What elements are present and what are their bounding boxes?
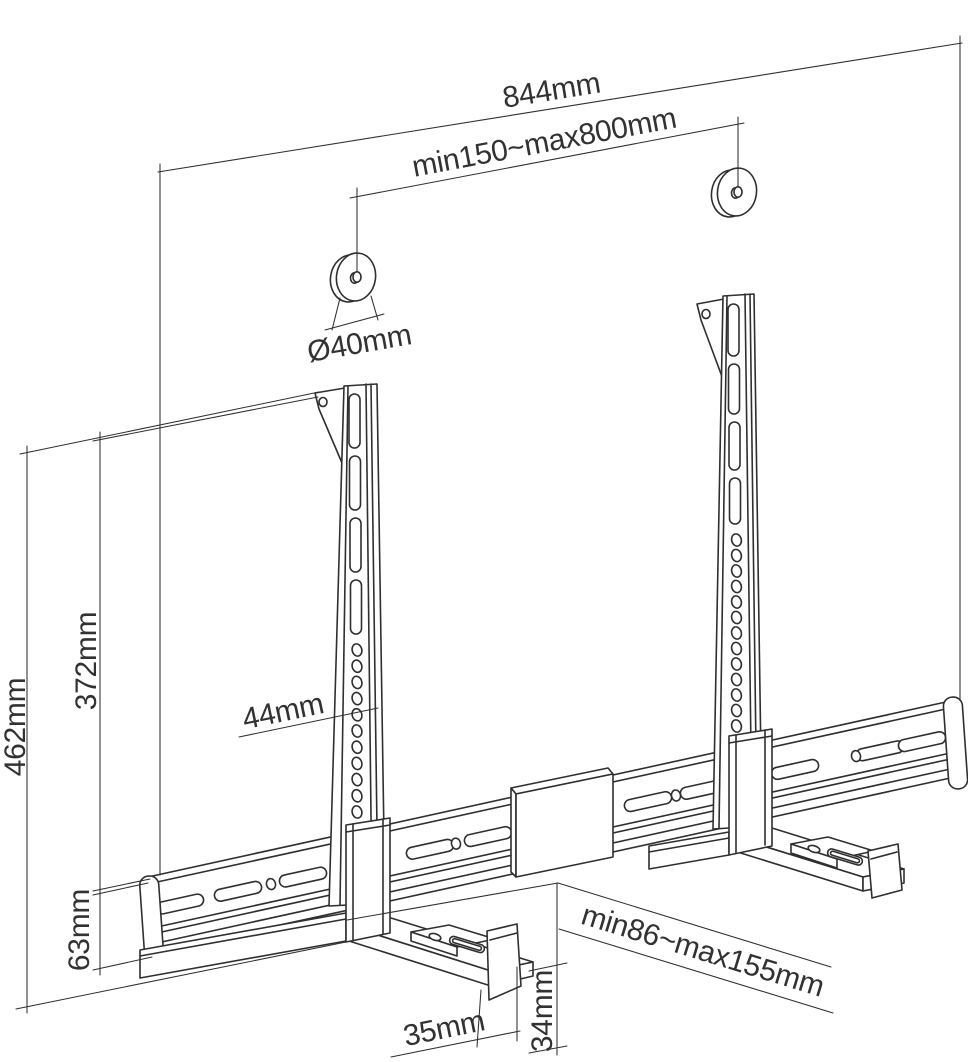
label-rail-height: 63mm — [63, 889, 96, 971]
rail-end-cap-right — [943, 696, 968, 789]
label-overall-height: 462mm — [0, 678, 32, 777]
left-strap-holes — [351, 643, 363, 819]
mount-dimension-diagram: 844mm min150~max800mm Ø40mm 462mm 372mm … — [0, 0, 968, 1062]
dimension-labels: 844mm min150~max800mm Ø40mm 462mm 372mm … — [0, 66, 828, 1053]
left-arm — [140, 913, 533, 1000]
right-strap-tab-hole — [702, 310, 710, 319]
right-arm — [649, 828, 904, 898]
right-strap-tab — [697, 299, 724, 382]
washer-right-hole — [734, 187, 742, 197]
center-slider-block — [511, 768, 613, 877]
label-total-width: 844mm — [500, 66, 603, 114]
label-washer-diameter: Ø40mm — [305, 318, 414, 369]
wall-washer-right — [708, 117, 759, 219]
wall-washer-left — [327, 188, 378, 304]
left-arm-front-lip — [487, 924, 521, 1000]
label-clamp-depth: 35mm — [401, 1004, 488, 1053]
washer-left-hole — [353, 272, 361, 282]
label-depth-adjustment: min86~max155mm — [578, 898, 828, 1003]
left-strap-tab-hole — [319, 398, 327, 407]
technical-drawing-page: 844mm min150~max800mm Ø40mm 462mm 372mm … — [0, 0, 968, 1062]
label-strap-height: 372mm — [70, 612, 103, 711]
right-clamp — [729, 729, 772, 855]
label-clamp-lip-height: 34mm — [526, 970, 559, 1052]
label-strap-width: 44mm — [239, 687, 326, 736]
left-clamp — [346, 818, 390, 942]
left-arm-base-bar — [140, 913, 346, 978]
